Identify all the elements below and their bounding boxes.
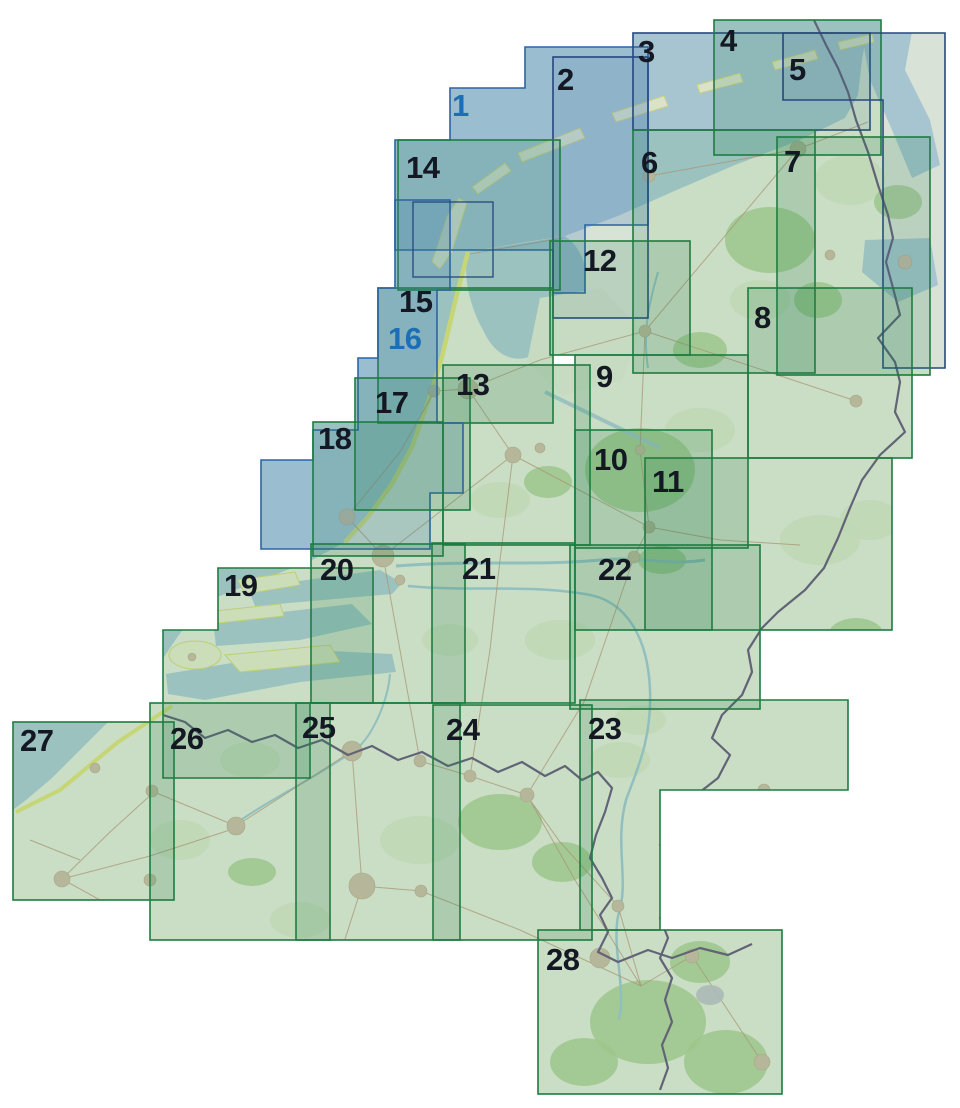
sheet-3-label: 3 bbox=[638, 34, 655, 69]
sheet-11-label: 11 bbox=[652, 464, 684, 499]
sheet-10-label: 10 bbox=[594, 442, 627, 477]
sheet-16-label: 16 bbox=[388, 321, 422, 356]
sheet-13-label: 13 bbox=[456, 367, 490, 402]
sheet-12[interactable] bbox=[550, 241, 690, 355]
sheet-12-label: 12 bbox=[583, 243, 616, 278]
sheet-1-label: 1 bbox=[452, 88, 469, 123]
sheet-8-label: 8 bbox=[754, 300, 771, 335]
sheet-4-label: 4 bbox=[720, 23, 738, 58]
sheet-21-label: 21 bbox=[462, 551, 496, 586]
netherlands-sheet-index-map: 1234567891011121314151617181920212223242… bbox=[0, 0, 960, 1108]
sheet-23-label: 23 bbox=[588, 711, 622, 746]
sheet-19-label: 19 bbox=[224, 568, 258, 603]
sheet-5-label: 5 bbox=[789, 52, 806, 87]
city-patch bbox=[323, 979, 337, 993]
sheet-2-label: 2 bbox=[557, 62, 574, 97]
map-sheet-index: 1234567891011121314151617181920212223242… bbox=[0, 0, 960, 1108]
sheet-24-label: 24 bbox=[446, 712, 481, 747]
sheet-6-label: 6 bbox=[641, 145, 658, 180]
sheet-9-label: 9 bbox=[596, 359, 613, 394]
sheet-22-label: 22 bbox=[598, 552, 631, 587]
sheet-18-label: 18 bbox=[318, 421, 352, 456]
sheet-20-label: 20 bbox=[320, 552, 353, 587]
sheet-7-label: 7 bbox=[784, 144, 801, 179]
sheet-27-label: 27 bbox=[20, 723, 53, 758]
sheet-15-label: 15 bbox=[399, 284, 433, 319]
city-patch bbox=[426, 984, 438, 996]
sheet-21[interactable] bbox=[432, 543, 575, 703]
field-patch bbox=[665, 858, 735, 902]
sheet-14-label: 14 bbox=[406, 150, 441, 185]
sheet-28-label: 28 bbox=[546, 942, 580, 977]
sheet-17-label: 17 bbox=[375, 385, 408, 420]
sheet-8[interactable] bbox=[748, 288, 912, 458]
sheet-25-label: 25 bbox=[302, 710, 336, 745]
sheet-26-label: 26 bbox=[170, 721, 204, 756]
